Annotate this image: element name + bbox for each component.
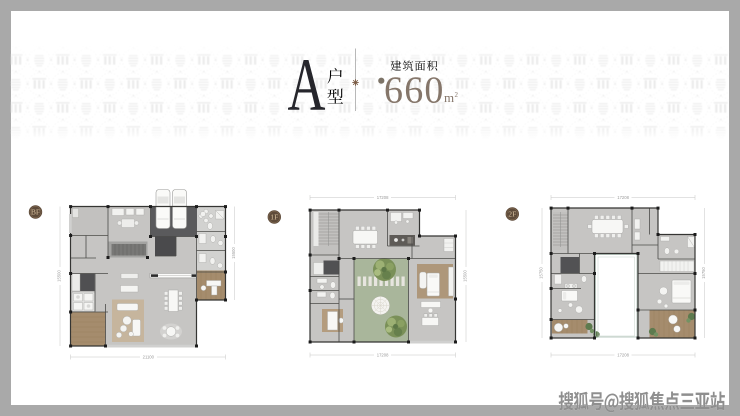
svg-text:15750: 15750 [539,267,544,279]
svg-text:2F: 2F [508,210,516,219]
svg-text:660: 660 [384,69,445,111]
svg-text:2: 2 [455,91,459,99]
svg-text:A: A [288,43,326,126]
svg-text:17208: 17208 [377,353,389,358]
svg-text:15500: 15500 [463,270,468,282]
svg-text:17208: 17208 [617,353,629,358]
svg-text:15500: 15500 [57,270,62,282]
svg-text:17208: 17208 [617,195,629,200]
svg-text:17208: 17208 [377,195,389,200]
svg-text:15500: 15500 [231,247,236,259]
svg-text:15750: 15750 [701,267,706,279]
svg-text:21100: 21100 [143,355,155,360]
svg-text:m: m [444,90,454,105]
svg-text:BF: BF [31,208,40,217]
svg-text:1F: 1F [270,213,278,222]
